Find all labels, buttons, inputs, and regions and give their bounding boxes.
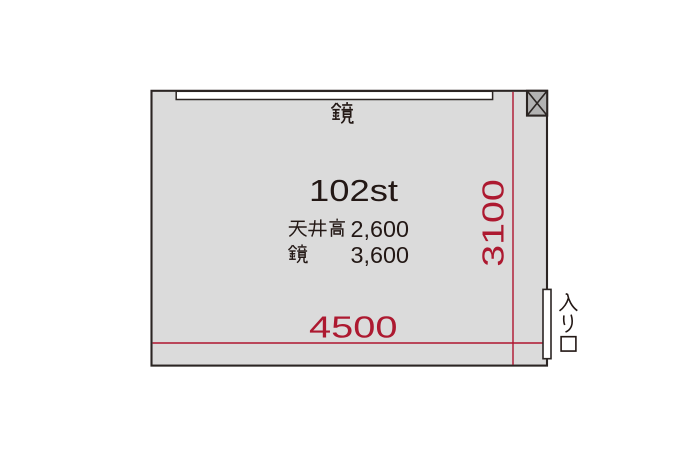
svg-text:3,600: 3,600: [351, 242, 410, 268]
svg-text:4500: 4500: [309, 310, 398, 344]
svg-text:2,600: 2,600: [351, 216, 410, 242]
svg-text:102st: 102st: [309, 173, 398, 208]
svg-text:3100: 3100: [477, 179, 511, 267]
